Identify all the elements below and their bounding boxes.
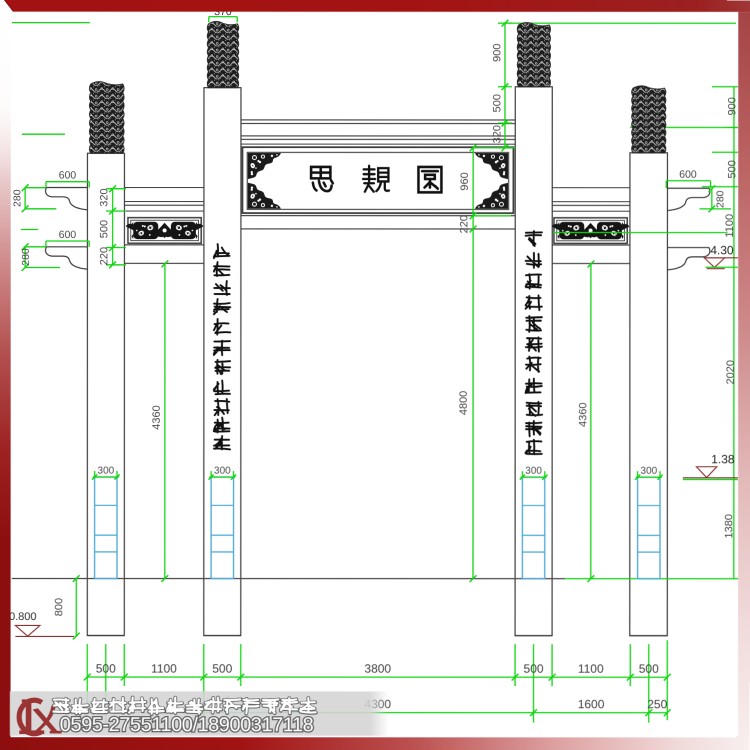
svg-text:500: 500	[639, 662, 659, 676]
svg-text:500: 500	[491, 94, 503, 112]
svg-text:1100: 1100	[151, 662, 177, 676]
svg-text:4360: 4360	[151, 405, 163, 429]
svg-text:500: 500	[98, 220, 110, 238]
svg-text:900: 900	[491, 43, 503, 61]
svg-text:220: 220	[458, 215, 470, 233]
svg-text:500: 500	[96, 662, 116, 676]
svg-text:280: 280	[20, 248, 32, 266]
svg-text:4360: 4360	[577, 402, 589, 426]
svg-text:600: 600	[59, 229, 77, 241]
svg-text:1100: 1100	[724, 214, 736, 238]
svg-text:300: 300	[525, 466, 542, 477]
svg-text:220: 220	[98, 247, 110, 265]
svg-text:320: 320	[491, 125, 503, 143]
svg-text:280: 280	[714, 190, 726, 208]
svg-text:4.30: 4.30	[710, 243, 734, 257]
svg-text:300: 300	[97, 466, 114, 477]
svg-text:1100: 1100	[578, 662, 604, 676]
svg-text:960: 960	[459, 172, 471, 190]
svg-text:500: 500	[726, 160, 738, 178]
svg-text:0595-27551100/18900317118: 0595-27551100/18900317118	[60, 714, 314, 736]
svg-text:1.38: 1.38	[711, 452, 735, 466]
svg-text:280: 280	[11, 189, 23, 207]
svg-text:0.800: 0.800	[9, 611, 37, 623]
svg-text:300: 300	[214, 466, 231, 477]
svg-text:250: 250	[647, 697, 667, 711]
svg-text:500: 500	[524, 662, 544, 676]
svg-text:3800: 3800	[364, 662, 391, 676]
svg-text:1380: 1380	[723, 514, 735, 538]
svg-text:900: 900	[726, 97, 738, 115]
svg-text:300: 300	[640, 466, 657, 477]
svg-text:500: 500	[212, 662, 232, 676]
svg-text:2020: 2020	[725, 360, 737, 384]
svg-text:320: 320	[98, 188, 110, 206]
svg-text:800: 800	[53, 598, 65, 616]
svg-text:600: 600	[679, 169, 697, 181]
svg-text:4800: 4800	[458, 391, 470, 415]
svg-text:600: 600	[59, 170, 77, 182]
svg-text:1600: 1600	[578, 697, 605, 711]
